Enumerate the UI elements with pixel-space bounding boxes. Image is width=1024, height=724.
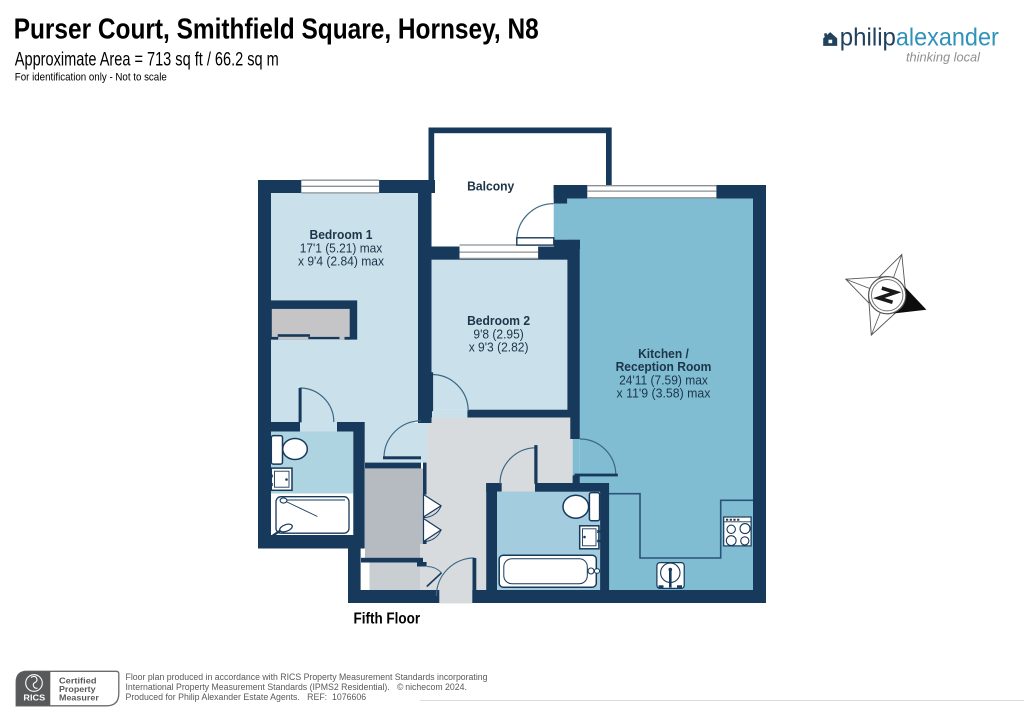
svg-text:Measurer: Measurer	[59, 692, 99, 702]
svg-text:philip: philip	[840, 24, 896, 52]
svg-text:9'8 (2.95): 9'8 (2.95)	[473, 327, 523, 341]
svg-text:x 9'3 (2.82): x 9'3 (2.82)	[469, 340, 529, 354]
svg-text:International Property Measure: International Property Measurement Stand…	[126, 682, 467, 692]
svg-text:Approximate Area = 713 sq ft /: Approximate Area = 713 sq ft / 66.2 sq m	[15, 49, 279, 71]
svg-text:24'11 (7.59) max: 24'11 (7.59) max	[619, 373, 709, 387]
svg-text:Reception Room: Reception Room	[616, 359, 712, 374]
svg-text:Balcony: Balcony	[467, 179, 515, 194]
svg-text:alexander: alexander	[896, 24, 999, 52]
svg-text:Fifth Floor: Fifth Floor	[354, 611, 421, 628]
svg-text:thinking local: thinking local	[906, 50, 981, 65]
svg-text:x 11'9 (3.58) max: x 11'9 (3.58) max	[617, 387, 712, 401]
svg-text:Bedroom 1: Bedroom 1	[310, 227, 373, 242]
svg-text:For identification only - Not: For identification only - Not to scale	[15, 72, 167, 84]
svg-text:RICS: RICS	[23, 694, 45, 703]
svg-text:Purser Court, Smithfield Squar: Purser Court, Smithfield Square, Hornsey…	[14, 13, 539, 45]
svg-text:Produced for Philip Alexander: Produced for Philip Alexander Estate Age…	[126, 692, 367, 702]
svg-text:Bedroom 2: Bedroom 2	[467, 313, 530, 328]
svg-text:17'1 (5.21) max: 17'1 (5.21) max	[300, 241, 383, 255]
svg-text:Floor plan produced in accorda: Floor plan produced in accordance with R…	[126, 672, 488, 682]
svg-text:x 9'4 (2.84) max: x 9'4 (2.84) max	[298, 255, 385, 269]
